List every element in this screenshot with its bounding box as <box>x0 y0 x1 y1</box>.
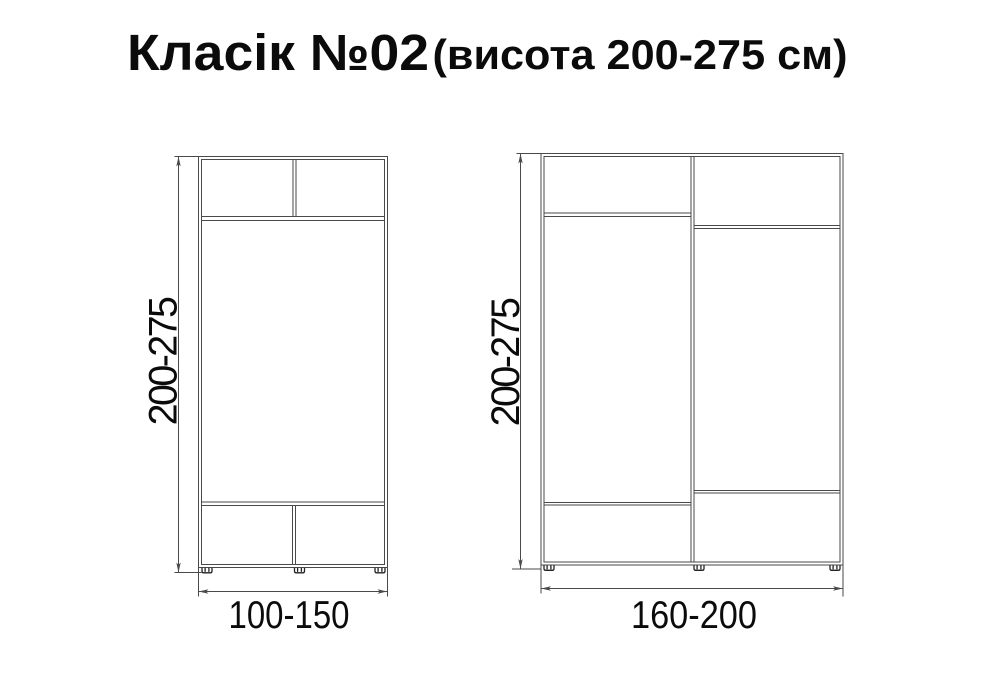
svg-text:200-275: 200-275 <box>484 298 528 426</box>
svg-text:Класік №02: Класік №02 <box>127 24 429 81</box>
svg-text:(висота 200-275 см): (висота 200-275 см) <box>433 31 848 78</box>
svg-text:200-275: 200-275 <box>142 297 186 425</box>
svg-text:100-150: 100-150 <box>229 594 350 637</box>
svg-text:160-200: 160-200 <box>631 594 757 637</box>
